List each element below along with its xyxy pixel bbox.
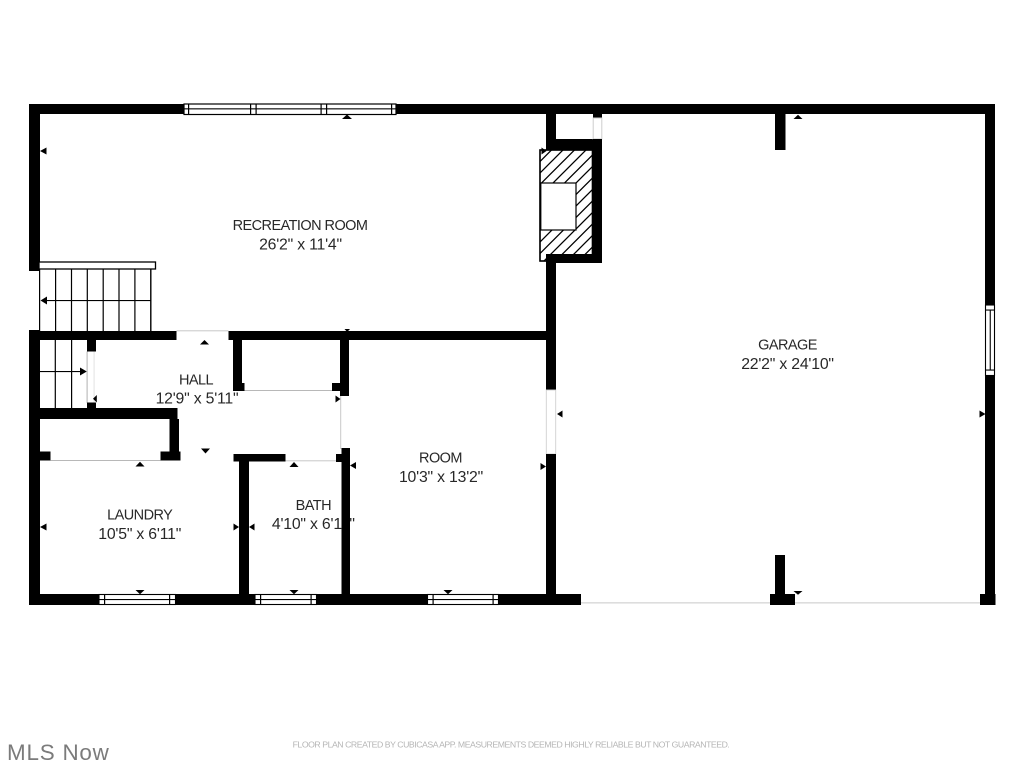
svg-text:BATH: BATH (296, 498, 331, 514)
svg-text:10'5" x 6'11": 10'5" x 6'11" (98, 526, 181, 543)
svg-text:RECREATION ROOM: RECREATION ROOM (233, 218, 368, 234)
svg-text:ROOM: ROOM (419, 451, 462, 467)
svg-text:22'2" x 24'10": 22'2" x 24'10" (741, 356, 834, 373)
svg-text:26'2" x 11'4": 26'2" x 11'4" (259, 237, 342, 254)
svg-text:GARAGE: GARAGE (758, 338, 818, 354)
svg-text:12'9" x 5'11": 12'9" x 5'11" (156, 391, 239, 408)
svg-text:10'3" x 13'2": 10'3" x 13'2" (399, 469, 483, 486)
svg-text:LAUNDRY: LAUNDRY (107, 508, 173, 524)
svg-text:FLOOR PLAN CREATED BY CUBICASA: FLOOR PLAN CREATED BY CUBICASA APP. MEAS… (293, 740, 730, 750)
svg-text:MLS Now: MLS Now (7, 740, 110, 765)
svg-text:HALL: HALL (179, 373, 214, 389)
